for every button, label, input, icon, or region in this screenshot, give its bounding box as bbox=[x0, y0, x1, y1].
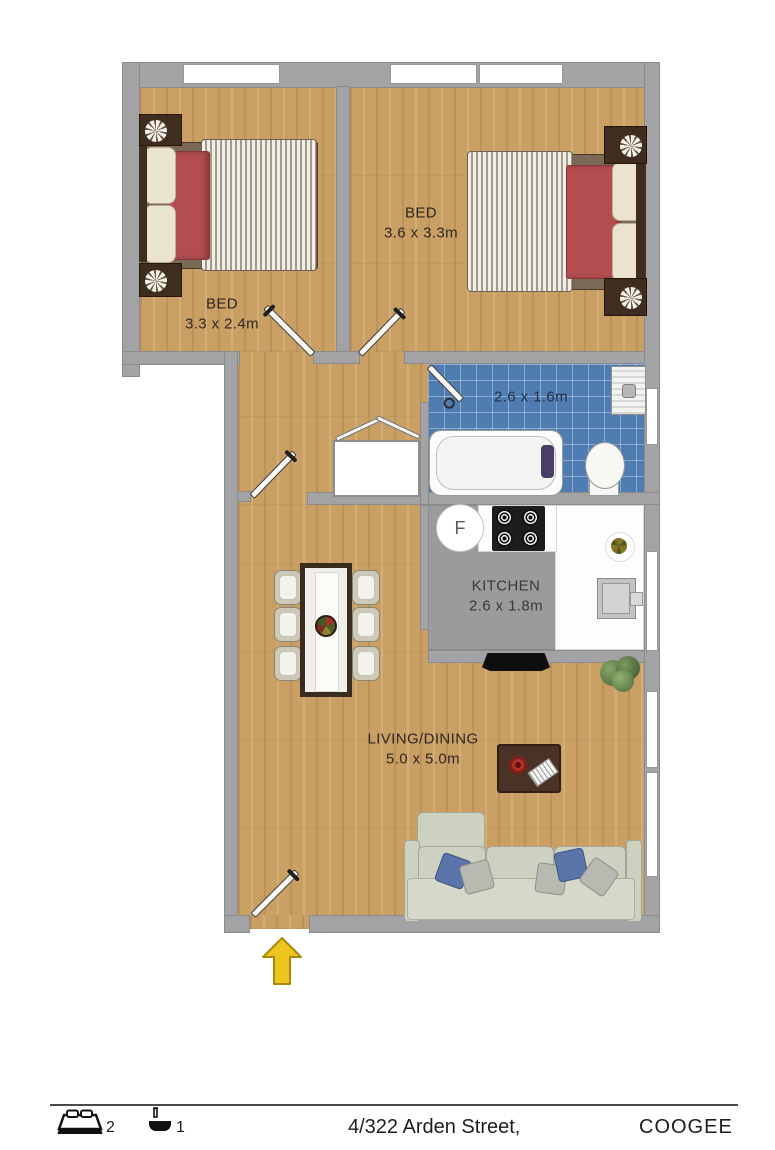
sink-faucet bbox=[630, 592, 643, 606]
window-living-lower bbox=[646, 772, 658, 877]
window-bed2-right bbox=[479, 64, 563, 84]
dining-table bbox=[300, 563, 352, 697]
room-name: LIVING/DINING bbox=[367, 730, 478, 750]
footer-suburb: COOGEE bbox=[639, 1116, 733, 1139]
dining-chair bbox=[274, 607, 302, 642]
fridge-label: F bbox=[455, 518, 466, 539]
room-name: BED bbox=[384, 204, 458, 224]
room-name: KITCHEN bbox=[469, 577, 543, 597]
bed-1-nightstand-top bbox=[139, 114, 182, 146]
wall-bedroom-divider bbox=[336, 86, 350, 352]
wall-left-lower bbox=[224, 351, 238, 933]
plant-foliage bbox=[612, 670, 634, 692]
closet bbox=[333, 440, 420, 497]
table-book bbox=[527, 758, 558, 787]
room-dims: 2.6 x 1.6m bbox=[494, 387, 568, 407]
bed-1-pillow-top bbox=[144, 147, 176, 204]
wall-left-upper bbox=[122, 62, 140, 377]
stove bbox=[492, 506, 545, 551]
entry-arrow-icon bbox=[261, 936, 303, 986]
coffee-table bbox=[497, 744, 561, 793]
floor-plan: F BED bbox=[0, 0, 775, 1150]
dining-chair bbox=[274, 646, 302, 681]
wall-hall-stub bbox=[237, 491, 251, 502]
potted-plant bbox=[600, 656, 644, 694]
footer-address: 4/322 Arden Street, bbox=[348, 1116, 520, 1139]
wall-bath-left bbox=[420, 402, 429, 505]
toilet bbox=[585, 442, 625, 489]
room-dims: 3.6 x 3.3m bbox=[384, 223, 458, 243]
bedrooms-count: 2 bbox=[106, 1119, 115, 1137]
bed-2-headboard bbox=[636, 158, 645, 284]
bed-1-nightstand-bottom bbox=[139, 263, 182, 297]
kitchen-label: KITCHEN 2.6 x 1.8m bbox=[469, 577, 543, 616]
chair-cushion bbox=[357, 612, 375, 637]
food bbox=[611, 538, 627, 554]
window-bathroom bbox=[646, 388, 658, 445]
dining-chair bbox=[352, 570, 380, 605]
chair-cushion bbox=[357, 575, 375, 600]
kitchen-sink bbox=[597, 578, 636, 619]
dining-chair bbox=[274, 570, 302, 605]
burner-icon bbox=[496, 509, 513, 526]
room-name: BED bbox=[185, 295, 259, 315]
wall-bath-top bbox=[404, 351, 660, 364]
bathtub bbox=[429, 430, 563, 496]
bedroom-2-label: BED 3.6 x 3.3m bbox=[384, 204, 458, 243]
food-plate bbox=[605, 532, 635, 562]
bathtub-basin bbox=[436, 436, 556, 490]
living-dining-label: LIVING/DINING 5.0 x 5.0m bbox=[367, 730, 478, 769]
bathrooms-count: 1 bbox=[176, 1119, 185, 1137]
bed-1-pillow-bottom bbox=[144, 205, 176, 263]
lamp-icon bbox=[144, 269, 168, 293]
fridge-circle: F bbox=[436, 504, 484, 552]
bathtub-headrest bbox=[541, 445, 554, 478]
wall-bottom-left bbox=[224, 915, 250, 933]
chair-cushion bbox=[279, 612, 297, 637]
bed-1-headboard bbox=[139, 144, 147, 262]
vanity-sink bbox=[622, 384, 636, 398]
vanity bbox=[611, 366, 646, 415]
bed-icon bbox=[56, 1108, 104, 1136]
dining-chair bbox=[352, 607, 380, 642]
fruit-bowl bbox=[315, 615, 337, 637]
bath-icon bbox=[145, 1106, 175, 1136]
bed-1-duvet bbox=[201, 139, 317, 271]
window-bed2-left bbox=[390, 64, 477, 84]
bathroom-label: 2.6 x 1.6m bbox=[494, 387, 568, 407]
sink-basin bbox=[602, 583, 630, 614]
entry-opening-floor bbox=[250, 915, 309, 929]
window-living-upper bbox=[646, 691, 658, 768]
room-dims: 3.3 x 2.4m bbox=[185, 314, 259, 334]
bed-2-duvet bbox=[467, 151, 573, 292]
bed-2-nightstand-top bbox=[604, 126, 647, 164]
window-bed1 bbox=[183, 64, 280, 84]
burner-icon bbox=[522, 509, 539, 526]
chair-cushion bbox=[279, 651, 297, 676]
window-kitchen bbox=[646, 551, 658, 651]
burner-icon bbox=[496, 530, 513, 547]
wall-bed1-bottom bbox=[122, 351, 240, 365]
bed-2-nightstand-bottom bbox=[604, 278, 647, 316]
lamp-icon bbox=[619, 286, 643, 310]
room-dims: 5.0 x 5.0m bbox=[367, 749, 478, 769]
wall-kitchen-left bbox=[420, 505, 429, 630]
bedroom-1-label: BED 3.3 x 2.4m bbox=[185, 295, 259, 334]
lamp-icon bbox=[144, 119, 168, 143]
chair-cushion bbox=[357, 651, 375, 676]
burner-icon bbox=[522, 530, 539, 547]
wall-hall-mid bbox=[313, 351, 360, 364]
chair-cushion bbox=[279, 575, 297, 600]
tv bbox=[482, 653, 550, 671]
table-flower bbox=[509, 756, 527, 774]
room-dims: 2.6 x 1.8m bbox=[469, 596, 543, 616]
dining-chair bbox=[352, 646, 380, 681]
lamp-icon bbox=[619, 134, 643, 158]
